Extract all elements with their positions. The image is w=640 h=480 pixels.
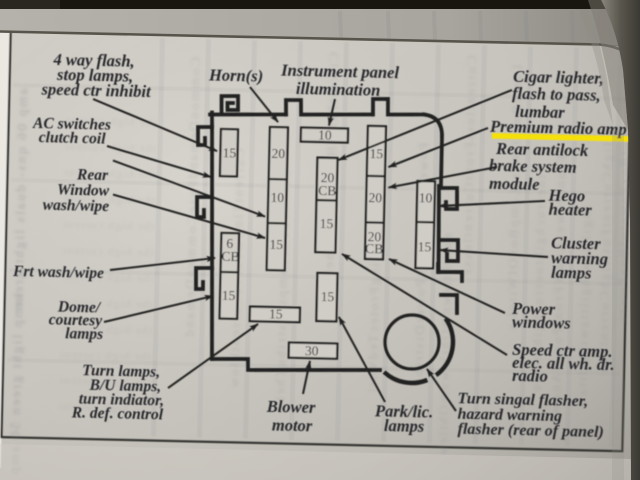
svg-text:R. def. control: R. def. control [71, 404, 164, 423]
svg-text:15: 15 [320, 289, 334, 304]
svg-text:clutch coil: clutch coil [39, 129, 107, 148]
svg-text:illumination: illumination [296, 79, 381, 100]
svg-text:radio: radio [512, 366, 548, 386]
svg-text:lamps: lamps [65, 325, 103, 343]
svg-text:15: 15 [418, 239, 432, 254]
svg-text:CB: CB [365, 241, 383, 256]
svg-text:the high current: the high current [62, 243, 154, 259]
svg-text:15: 15 [320, 216, 334, 231]
svg-text:Blower: Blower [266, 397, 317, 417]
svg-text:20: 20 [271, 146, 285, 161]
svg-text:15: 15 [222, 288, 236, 303]
svg-text:module: module [489, 174, 540, 194]
svg-text:CB: CB [318, 183, 336, 198]
svg-text:heater: heater [548, 199, 592, 219]
svg-text:windows: windows [512, 312, 571, 332]
svg-text:CB: CB [221, 249, 239, 264]
svg-text:lamps: lamps [551, 263, 592, 283]
svg-text:15: 15 [269, 237, 283, 252]
svg-text:20: 20 [368, 190, 382, 205]
svg-text:10: 10 [318, 127, 332, 142]
svg-text:Premium radio amp: Premium radio amp [489, 117, 627, 139]
svg-text:15: 15 [369, 146, 383, 161]
svg-text:30: 30 [305, 343, 319, 358]
svg-text:the high current: the high current [59, 347, 151, 363]
svg-text:wash/wipe: wash/wipe [43, 197, 110, 216]
svg-text:15: 15 [223, 145, 237, 160]
svg-text:lamps: lamps [384, 416, 425, 436]
svg-text:speed ctr inhibit: speed ctr inhibit [40, 80, 151, 102]
svg-text:Horn(s): Horn(s) [208, 65, 264, 85]
svg-text:motor: motor [272, 416, 313, 436]
svg-text:15: 15 [269, 306, 283, 321]
svg-text:flasher (rear of panel): flasher (rear of panel) [457, 420, 604, 440]
svg-text:the high current: the high current [62, 217, 154, 233]
svg-text:10: 10 [419, 190, 433, 205]
svg-text:Frt wash/wipe: Frt wash/wipe [12, 263, 104, 282]
svg-text:10: 10 [270, 190, 284, 205]
